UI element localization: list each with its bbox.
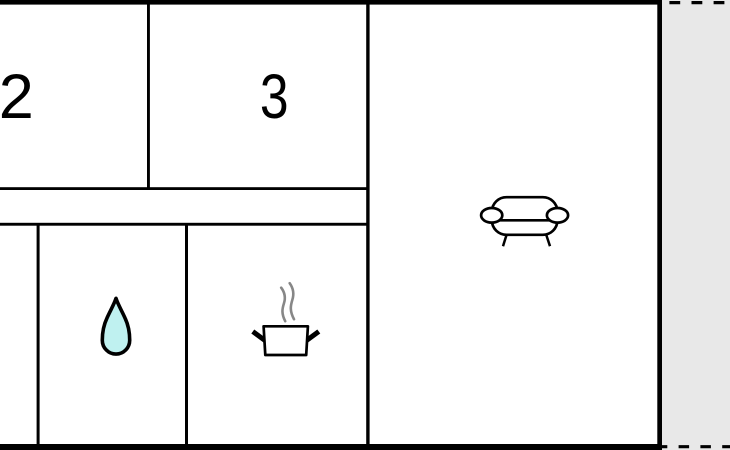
svg-text:3: 3 [260, 62, 289, 132]
svg-text:2: 2 [0, 62, 34, 132]
